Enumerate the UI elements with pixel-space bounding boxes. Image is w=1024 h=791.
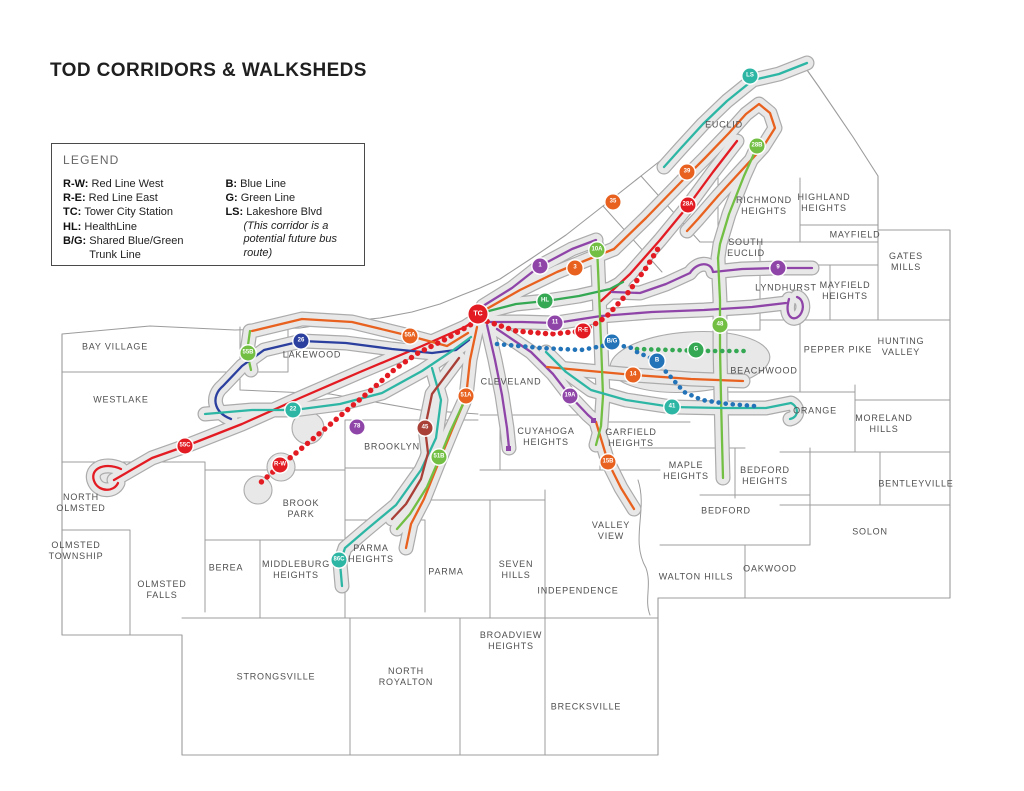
route-badge-78: 78 (350, 420, 365, 435)
route-badge-45: 45 (418, 421, 433, 436)
station-marker (506, 446, 511, 451)
route-badge-41: 41 (665, 400, 680, 415)
route-badge-55a: 55A (403, 329, 418, 344)
legend-item: B/G: Shared Blue/Green Trunk Line (63, 234, 225, 262)
legend-item: TC: Tower City Station (63, 205, 225, 219)
route-badge-b: B (650, 354, 665, 369)
route-badge-ls: LS (743, 69, 758, 84)
route-badge-g: G (689, 343, 704, 358)
legend: LEGEND R-W: Red Line West R-E: Red Line … (51, 143, 365, 266)
route-badge-51a: 51A (459, 389, 474, 404)
route-badge-55c: 55C (178, 439, 193, 454)
legend-column-left: R-W: Red Line West R-E: Red Line East TC… (63, 177, 225, 262)
legend-item: G: Green Line (225, 191, 353, 205)
route-badge-55b: 55B (241, 346, 256, 361)
route-badge-26: 26 (294, 334, 309, 349)
route-badge-14: 14 (626, 368, 641, 383)
route-badge-1: 1 (533, 259, 548, 274)
route-badge-r-e: R-E (576, 324, 591, 339)
legend-item: R-E: Red Line East (63, 191, 225, 205)
station-marker (591, 418, 596, 423)
route-badge-b-g: B/G (605, 335, 620, 350)
map-poster: TOD CORRIDORS & WALKSHEDS LEGEND R-W: Re… (0, 0, 1024, 791)
route-badge-39: 39 (680, 165, 695, 180)
legend-item: R-W: Red Line West (63, 177, 225, 191)
legend-column-right: B: Blue Line G: Green Line LS: Lakeshore… (225, 177, 353, 262)
route-badge-11: 11 (548, 316, 563, 331)
route-badge-86c: 86C (332, 553, 347, 568)
transit-map-svg (0, 0, 1024, 791)
route-badge-15b: 15B (601, 455, 616, 470)
route-badge-22: 22 (286, 403, 301, 418)
route-badge-28a: 28A (681, 198, 696, 213)
route-badge-35: 35 (606, 195, 621, 210)
route-badge-r-w: R-W (273, 458, 288, 473)
page-title: TOD CORRIDORS & WALKSHEDS (50, 60, 367, 82)
route-badge-3: 3 (568, 261, 583, 276)
legend-item: LS: Lakeshore Blvd (225, 205, 353, 219)
legend-item: HL: HealthLine (63, 220, 225, 234)
route-badge-hl: HL (538, 294, 553, 309)
walkshed-buffers (89, 63, 812, 586)
route-badge-48: 48 (713, 318, 728, 333)
legend-item: B: Blue Line (225, 177, 353, 191)
route-badge-51b: 51B (432, 450, 447, 465)
route-badge-10a: 10A (590, 243, 605, 258)
route-badge-19a: 19A (563, 389, 578, 404)
legend-note: (This corridor is a potential future bus… (243, 220, 351, 261)
route-badge-28b: 28B (750, 139, 765, 154)
legend-heading: LEGEND (63, 153, 353, 167)
route-badge-tc: TC (469, 305, 488, 324)
airport-walkshed-circle (244, 476, 272, 504)
route-badge-9: 9 (771, 261, 786, 276)
